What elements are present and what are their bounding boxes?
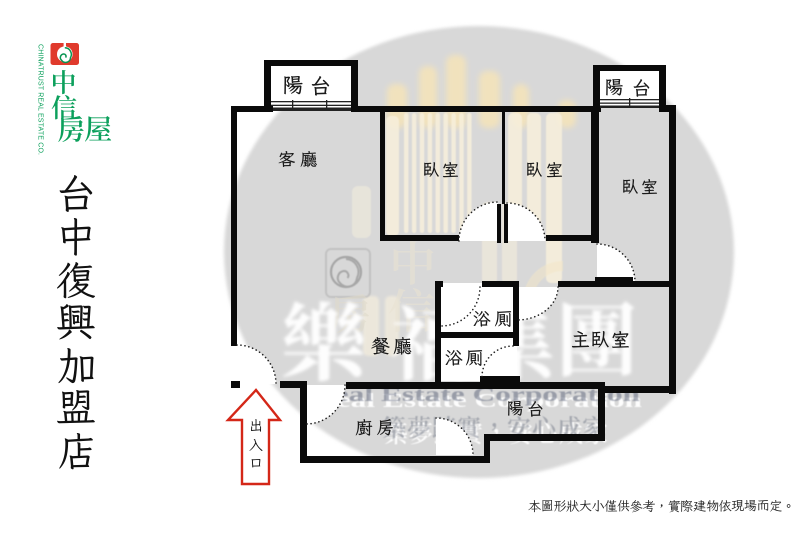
svg-text:CHINATRUST REAL ESTATE CO.: CHINATRUST REAL ESTATE CO.	[37, 44, 44, 155]
